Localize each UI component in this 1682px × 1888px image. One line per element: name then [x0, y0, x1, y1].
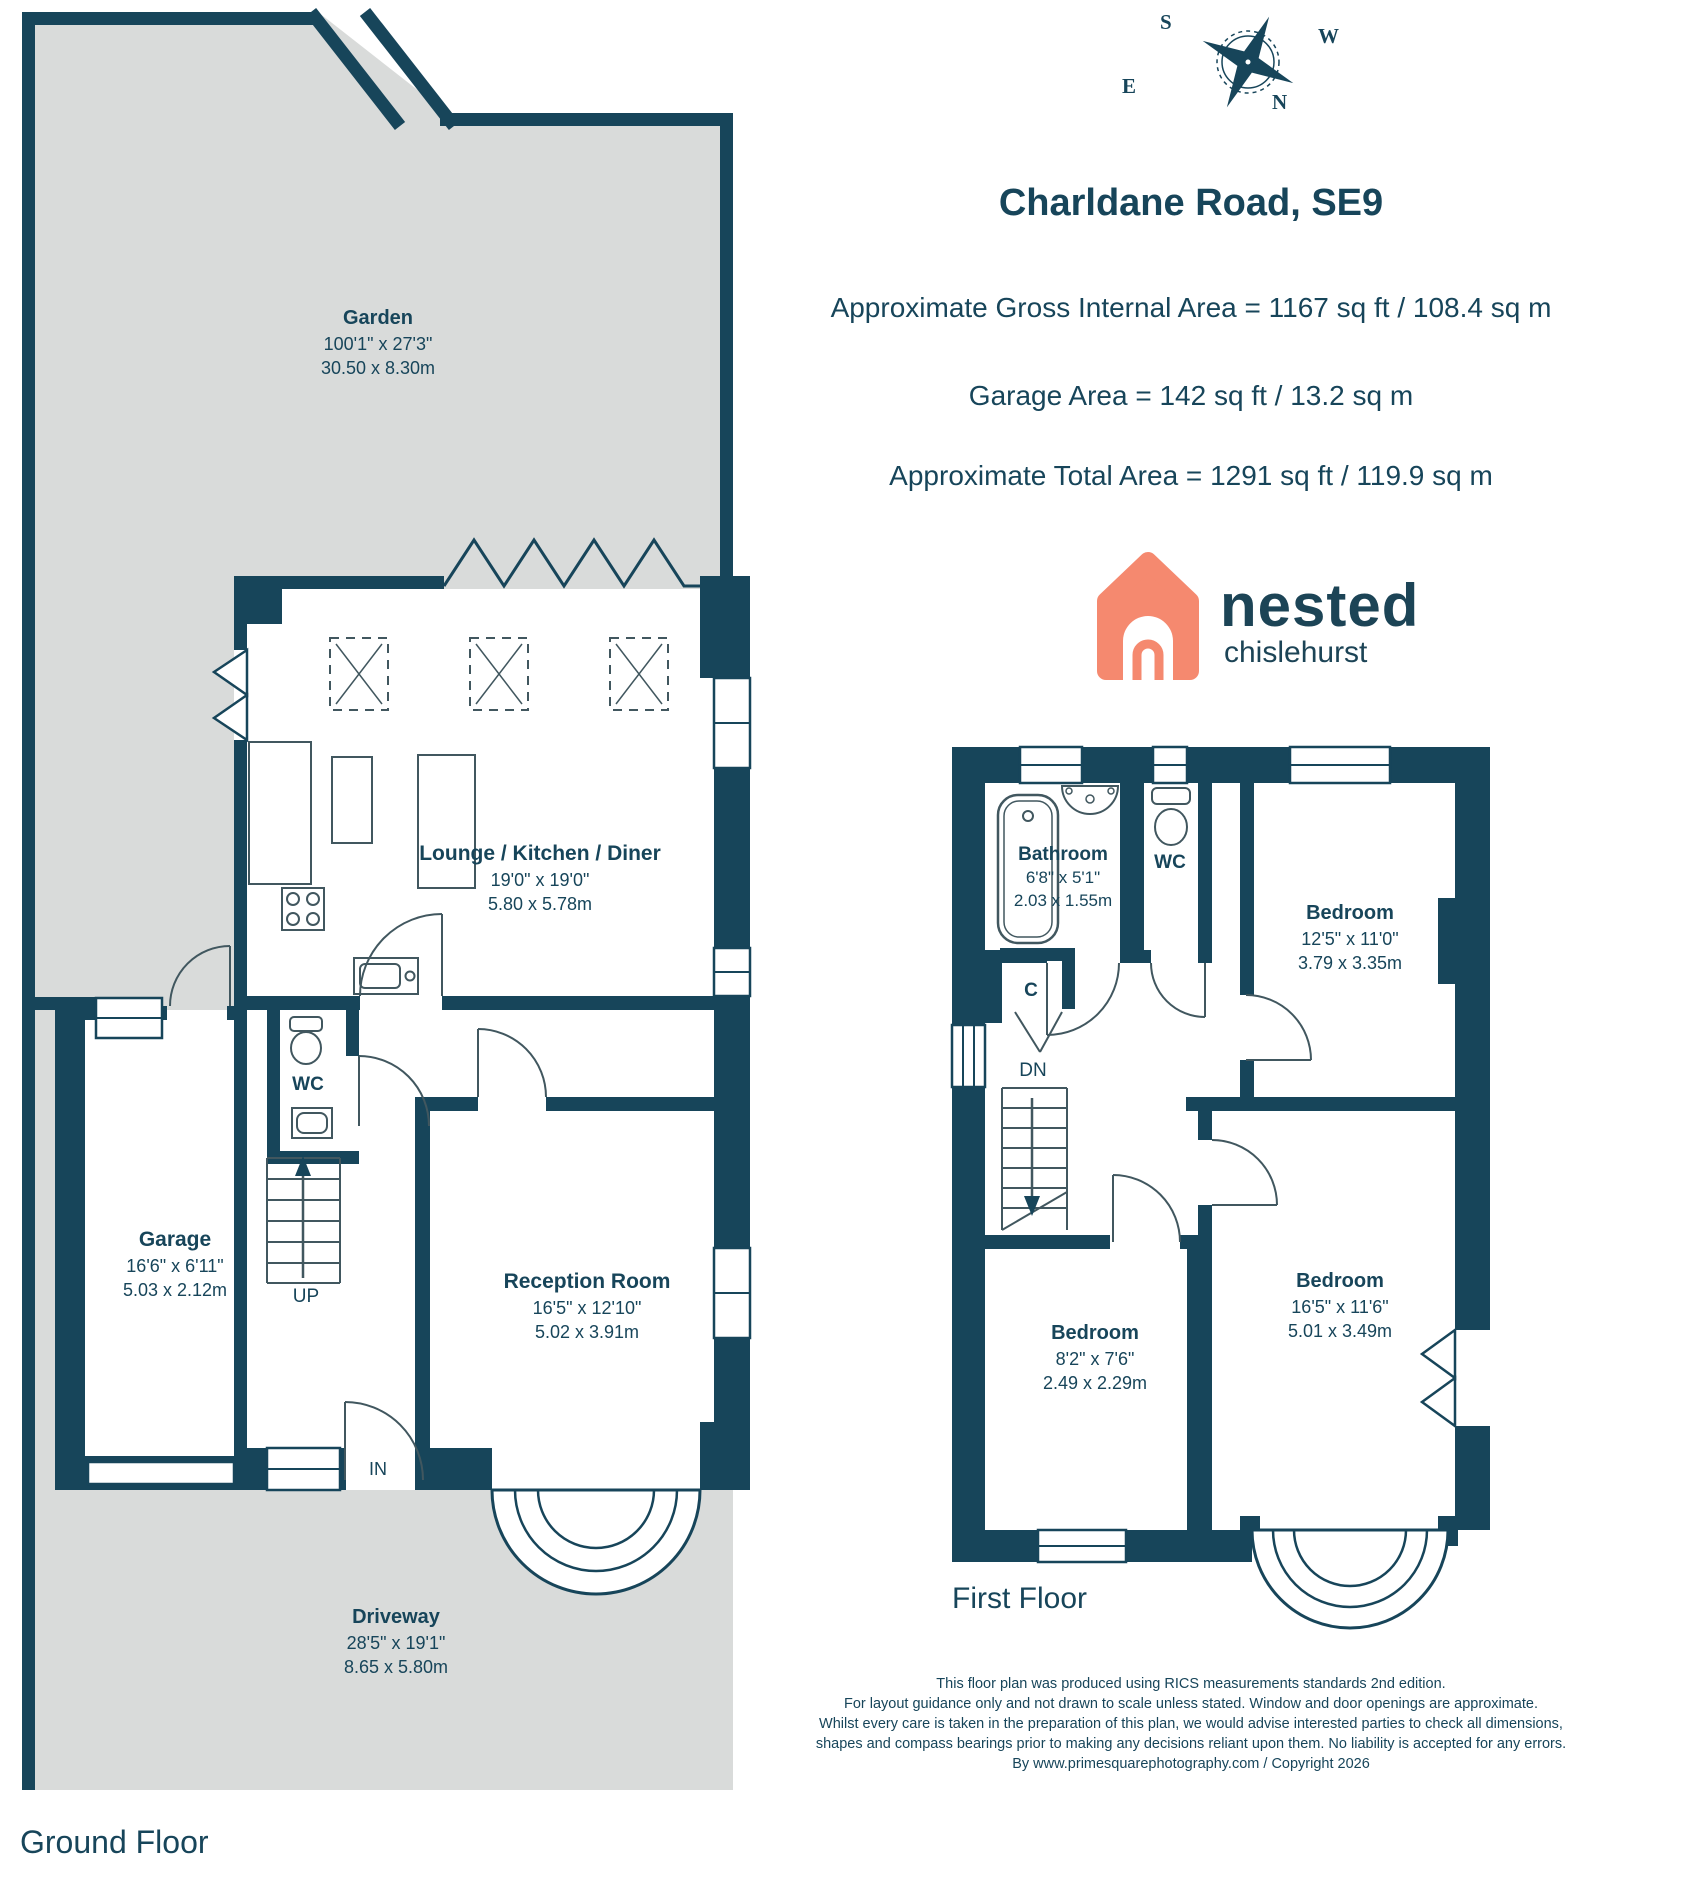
logo-brand-text: nested [1220, 576, 1419, 636]
stairs-up-label: UP [282, 1286, 330, 1308]
page-title: Charldane Road, SE9 [700, 182, 1682, 225]
room-label-bedroom-rear: Bedroom 16'5" x 11'6" 5.01 x 3.49m [1240, 1268, 1440, 1343]
room-label-bathroom: Bathroom 6'8" x 5'1" 2.03 x 1.55m [993, 842, 1133, 913]
room-label-bedroom-small: Bedroom 8'2" x 7'6" 2.49 x 2.29m [995, 1320, 1195, 1395]
room-label-garage: Garage 16'6" x 6'11" 5.03 x 2.12m [60, 1226, 290, 1302]
disclaimer-line: Whilst every care is taken in the prepar… [700, 1714, 1682, 1734]
room-label-lounge-kitchen-diner: Lounge / Kitchen / Diner 19'0" x 19'0" 5… [400, 840, 680, 916]
gross-internal-area: Approximate Gross Internal Area = 1167 s… [700, 292, 1682, 324]
room-label-bedroom-front: Bedroom 12'5" x 11'0" 3.79 x 3.35m [1250, 900, 1450, 975]
compass-letter-w: W [1318, 24, 1339, 49]
compass-icon [1182, 0, 1315, 128]
room-label-wc-first: WC [1140, 850, 1200, 875]
disclaimer-line: This floor plan was produced using RICS … [700, 1674, 1682, 1694]
total-area: Approximate Total Area = 1291 sq ft / 11… [700, 460, 1682, 492]
entrance-in-label: IN [357, 1459, 399, 1480]
compass-letter-n: N [1272, 90, 1287, 115]
compass-letter-e: E [1122, 74, 1136, 99]
stairs-down-icon [1002, 1088, 1067, 1230]
logo-location-text: chislehurst [1224, 638, 1367, 668]
garage-area: Garage Area = 142 sq ft / 13.2 sq m [700, 380, 1682, 412]
room-label-garden: Garden 100'1" x 27'3" 30.50 x 8.30m [238, 305, 518, 380]
nested-logo-icon [1106, 561, 1190, 680]
disclaimer-line: For layout guidance only and not drawn t… [700, 1694, 1682, 1714]
room-label-reception: Reception Room 16'5" x 12'10" 5.02 x 3.9… [447, 1268, 727, 1344]
compass-letter-s: S [1160, 10, 1172, 35]
ground-floor-title: Ground Floor [20, 1824, 209, 1861]
stairs-down-label: DN [1008, 1060, 1058, 1082]
first-floor-title: First Floor [952, 1582, 1087, 1616]
disclaimer-line: shapes and compass bearings prior to mak… [700, 1734, 1682, 1754]
room-label-driveway: Driveway 28'5" x 19'1" 8.65 x 5.80m [256, 1604, 536, 1679]
room-label-wc-ground: WC [278, 1072, 338, 1097]
disclaimer-line: By www.primesquarephotography.com / Copy… [700, 1754, 1682, 1774]
floorplan-page: S W E N Charldane Road, SE9 Approximate … [0, 0, 1682, 1888]
disclaimer: This floor plan was produced using RICS … [700, 1674, 1682, 1774]
closet-label: C [1008, 978, 1054, 1003]
